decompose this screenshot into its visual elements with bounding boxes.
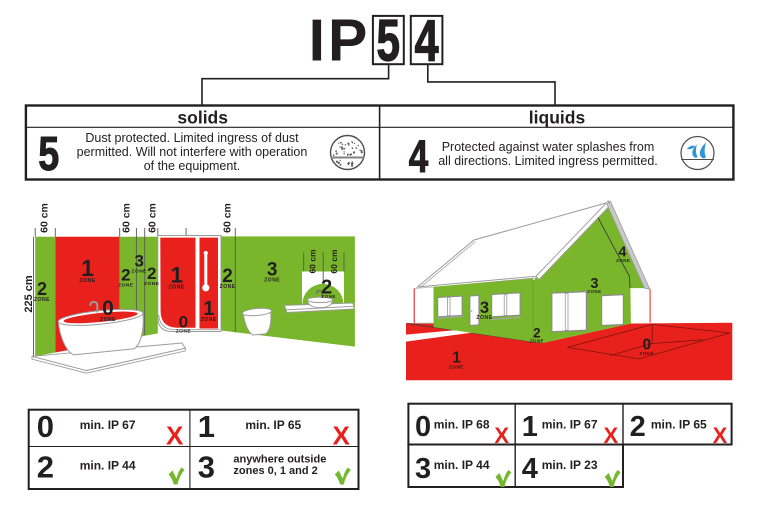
svg-text:ZONE: ZONE xyxy=(321,294,336,299)
svg-text:min. IP 65: min. IP 65 xyxy=(651,418,707,432)
svg-text:225 cm: 225 cm xyxy=(23,275,35,313)
svg-text:ZONE: ZONE xyxy=(616,258,630,263)
svg-text:60 cm: 60 cm xyxy=(147,203,159,233)
svg-text:2: 2 xyxy=(147,264,156,283)
svg-text:X: X xyxy=(494,423,509,448)
svg-text:3: 3 xyxy=(134,252,143,271)
svg-text:permitted. Will not interfere: permitted. Will not interfere with opera… xyxy=(77,145,308,159)
svg-text:X: X xyxy=(166,421,184,451)
svg-text:4: 4 xyxy=(522,453,538,485)
svg-text:ZONE: ZONE xyxy=(639,351,654,356)
svg-text:min. IP 67: min. IP 67 xyxy=(80,418,136,432)
svg-text:liquids: liquids xyxy=(529,108,586,128)
svg-text:solids: solids xyxy=(177,108,228,128)
svg-text:60 cm: 60 cm xyxy=(308,249,318,274)
svg-text:60 cm: 60 cm xyxy=(121,203,133,233)
svg-text:5: 5 xyxy=(377,9,401,74)
svg-text:Dust protected. Limited ingres: Dust protected. Limited ingress of dust xyxy=(85,131,299,145)
svg-text:min. IP 44: min. IP 44 xyxy=(434,458,490,472)
svg-text:ZONE: ZONE xyxy=(34,297,50,303)
svg-text:of the equipment.: of the equipment. xyxy=(144,159,241,173)
svg-text:3: 3 xyxy=(198,450,215,485)
svg-text:ZONE: ZONE xyxy=(176,328,192,334)
svg-text:all directions. Limited ingres: all directions. Limited ingress permitte… xyxy=(438,154,658,168)
svg-text:2: 2 xyxy=(630,411,646,443)
svg-text:X: X xyxy=(713,423,728,448)
svg-text:4: 4 xyxy=(415,9,439,74)
svg-text:60 cm: 60 cm xyxy=(38,203,50,233)
svg-text:ZONE: ZONE xyxy=(79,278,95,284)
svg-text:ZONE: ZONE xyxy=(530,338,544,343)
svg-text:60 cm: 60 cm xyxy=(329,249,339,274)
svg-text:X: X xyxy=(333,421,351,451)
svg-text:ZONE: ZONE xyxy=(118,282,134,288)
svg-text:1: 1 xyxy=(198,409,215,444)
svg-text:zones 0, 1 and 2: zones 0, 1 and 2 xyxy=(233,465,317,477)
svg-text:min. IP 67: min. IP 67 xyxy=(542,418,598,432)
svg-text:ZONE: ZONE xyxy=(168,285,184,291)
svg-text:ZONE: ZONE xyxy=(449,364,464,369)
svg-text:0: 0 xyxy=(415,411,431,443)
svg-text:min. IP 44: min. IP 44 xyxy=(80,458,136,472)
svg-text:ZONE: ZONE xyxy=(476,315,492,321)
svg-text:ZONE: ZONE xyxy=(201,317,217,323)
svg-text:5: 5 xyxy=(38,128,59,181)
svg-text:min. IP 68: min. IP 68 xyxy=(434,418,490,432)
svg-text:min. IP 23: min. IP 23 xyxy=(542,458,598,472)
svg-text:2: 2 xyxy=(37,450,54,485)
svg-text:ZONE: ZONE xyxy=(264,277,280,283)
svg-text:60 cm: 60 cm xyxy=(222,203,234,233)
svg-text:3: 3 xyxy=(415,453,431,485)
svg-text:Protected against water splash: Protected against water splashes from xyxy=(442,140,655,154)
svg-text:ZONE: ZONE xyxy=(587,289,601,294)
svg-text:anywhere outside: anywhere outside xyxy=(233,454,326,466)
svg-text:ZONE: ZONE xyxy=(100,317,116,323)
svg-text:ZONE: ZONE xyxy=(132,268,148,274)
svg-text:ZONE: ZONE xyxy=(220,284,236,290)
svg-text:2: 2 xyxy=(121,266,130,285)
svg-text:IP: IP xyxy=(309,8,371,74)
svg-text:4: 4 xyxy=(409,131,429,182)
svg-text:ZONE: ZONE xyxy=(144,281,160,287)
svg-text:1: 1 xyxy=(522,411,538,443)
svg-text:0: 0 xyxy=(37,409,54,444)
svg-text:X: X xyxy=(604,423,619,448)
svg-text:min. IP 65: min. IP 65 xyxy=(245,418,301,432)
